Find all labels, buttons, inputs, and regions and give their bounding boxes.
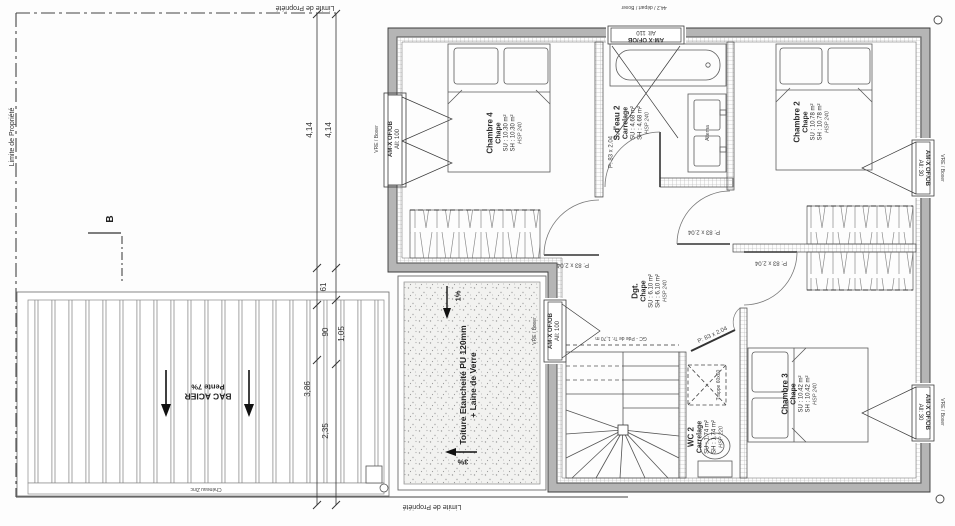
floor-plan-page: Limite de Propriété Limite de Propriété … xyxy=(0,0,955,526)
dim-61: 61 xyxy=(319,283,329,292)
limite-top-label: Limite de Propriété xyxy=(276,3,335,11)
door-label-chambre3: P: 83 x 2.04 xyxy=(755,258,787,265)
room-chambre4-label: Chambre 4Chape SU : 10.30 m²SH : 10.30 m… xyxy=(486,112,525,153)
section-marker xyxy=(88,233,122,282)
window-top-shutter-label: 44.2 / départ / Boxer xyxy=(621,4,666,10)
door-label-chambre4: P: 83 x 2.04 xyxy=(557,260,589,267)
closet-chambre3 xyxy=(807,252,913,290)
dim-386: 3,86 xyxy=(303,381,313,397)
floor-plan-drawing xyxy=(0,0,955,526)
bac-acier-label: BAC ACIER Pente 7% xyxy=(185,382,232,401)
closet-chambre4 xyxy=(410,210,540,258)
winder-treads xyxy=(566,410,679,478)
room-sdeau2-label: S.d'eau 2Carrelage SU : 4.68 m²SH : 4.68… xyxy=(613,106,652,141)
slope-3pct-label: 3% xyxy=(458,458,469,467)
closet-chambre2 xyxy=(807,206,913,244)
window-west-label: AM-X OF/OBAll: 100 xyxy=(548,313,562,349)
flat-roof-label: Toiture Etancheité PU 120mm + Laine de V… xyxy=(458,325,478,444)
window-right-lower-shutter-label: VRE / Boxer xyxy=(939,398,945,426)
slope-1pct-label: 1% xyxy=(454,291,463,302)
window-top-label: AM-X OF/OBAll: 110 xyxy=(628,28,664,42)
attic-hatch-label: Trappe 60x60 xyxy=(716,370,722,401)
limite-left-label: Limite de Propriété xyxy=(9,108,17,167)
window-right-upper-label: AM-X OF/OBAll: 30 xyxy=(916,150,930,186)
room-chambre2-label: Chambre 2Chape SU : 10.78 m²SH : 10.78 m… xyxy=(793,101,832,142)
guardrail-label: GC - Pde de Tr. 1,70 m xyxy=(595,335,646,341)
door-label-sdeau2: P: 83 x 2.04 xyxy=(608,136,615,168)
window-west-shutter-label: VRE / Boxer xyxy=(532,317,538,345)
window-left-shutter-label: VRE / Boxer xyxy=(374,125,380,153)
section-b-label: B xyxy=(105,215,117,222)
staircase xyxy=(566,345,679,478)
vanity-label: Alterna xyxy=(705,125,711,141)
bathtub xyxy=(610,44,726,86)
room-dgt-label: Dgt.Chape SU : 6.10 m²SH : 6.10 m² HSP 2… xyxy=(631,274,670,308)
dim-235: 2,35 xyxy=(321,423,331,439)
window-right-upper-shutter-label: VRE / Boxer xyxy=(939,154,945,182)
dim-414-left: 4,14 xyxy=(305,122,315,138)
room-wc2-label: WC 2Carrelage SU : 1.74 m²SH : 1.74 m² H… xyxy=(687,420,726,454)
door-chambre2 xyxy=(677,191,730,244)
room-chambre3-label: Chambre 3Chape SU : 10.42 m²SH : 10.42 m… xyxy=(781,373,820,414)
dim-90: 90 xyxy=(321,328,331,337)
dim-105: 1,05 xyxy=(337,326,347,342)
dim-414-right: 4,14 xyxy=(324,122,334,138)
limite-bottom-label: Limite de Propriété xyxy=(403,502,462,510)
door-label-chambre2: P: 83 x 2.04 xyxy=(688,227,720,234)
door-chambre4 xyxy=(544,200,599,255)
gutter-label: Chéneau Zinc xyxy=(190,486,221,492)
window-left-label: AM-X OF/OBAll: 100 xyxy=(388,121,402,157)
window-right-lower-label: AM-X OF/OBAll: 30 xyxy=(916,394,930,430)
